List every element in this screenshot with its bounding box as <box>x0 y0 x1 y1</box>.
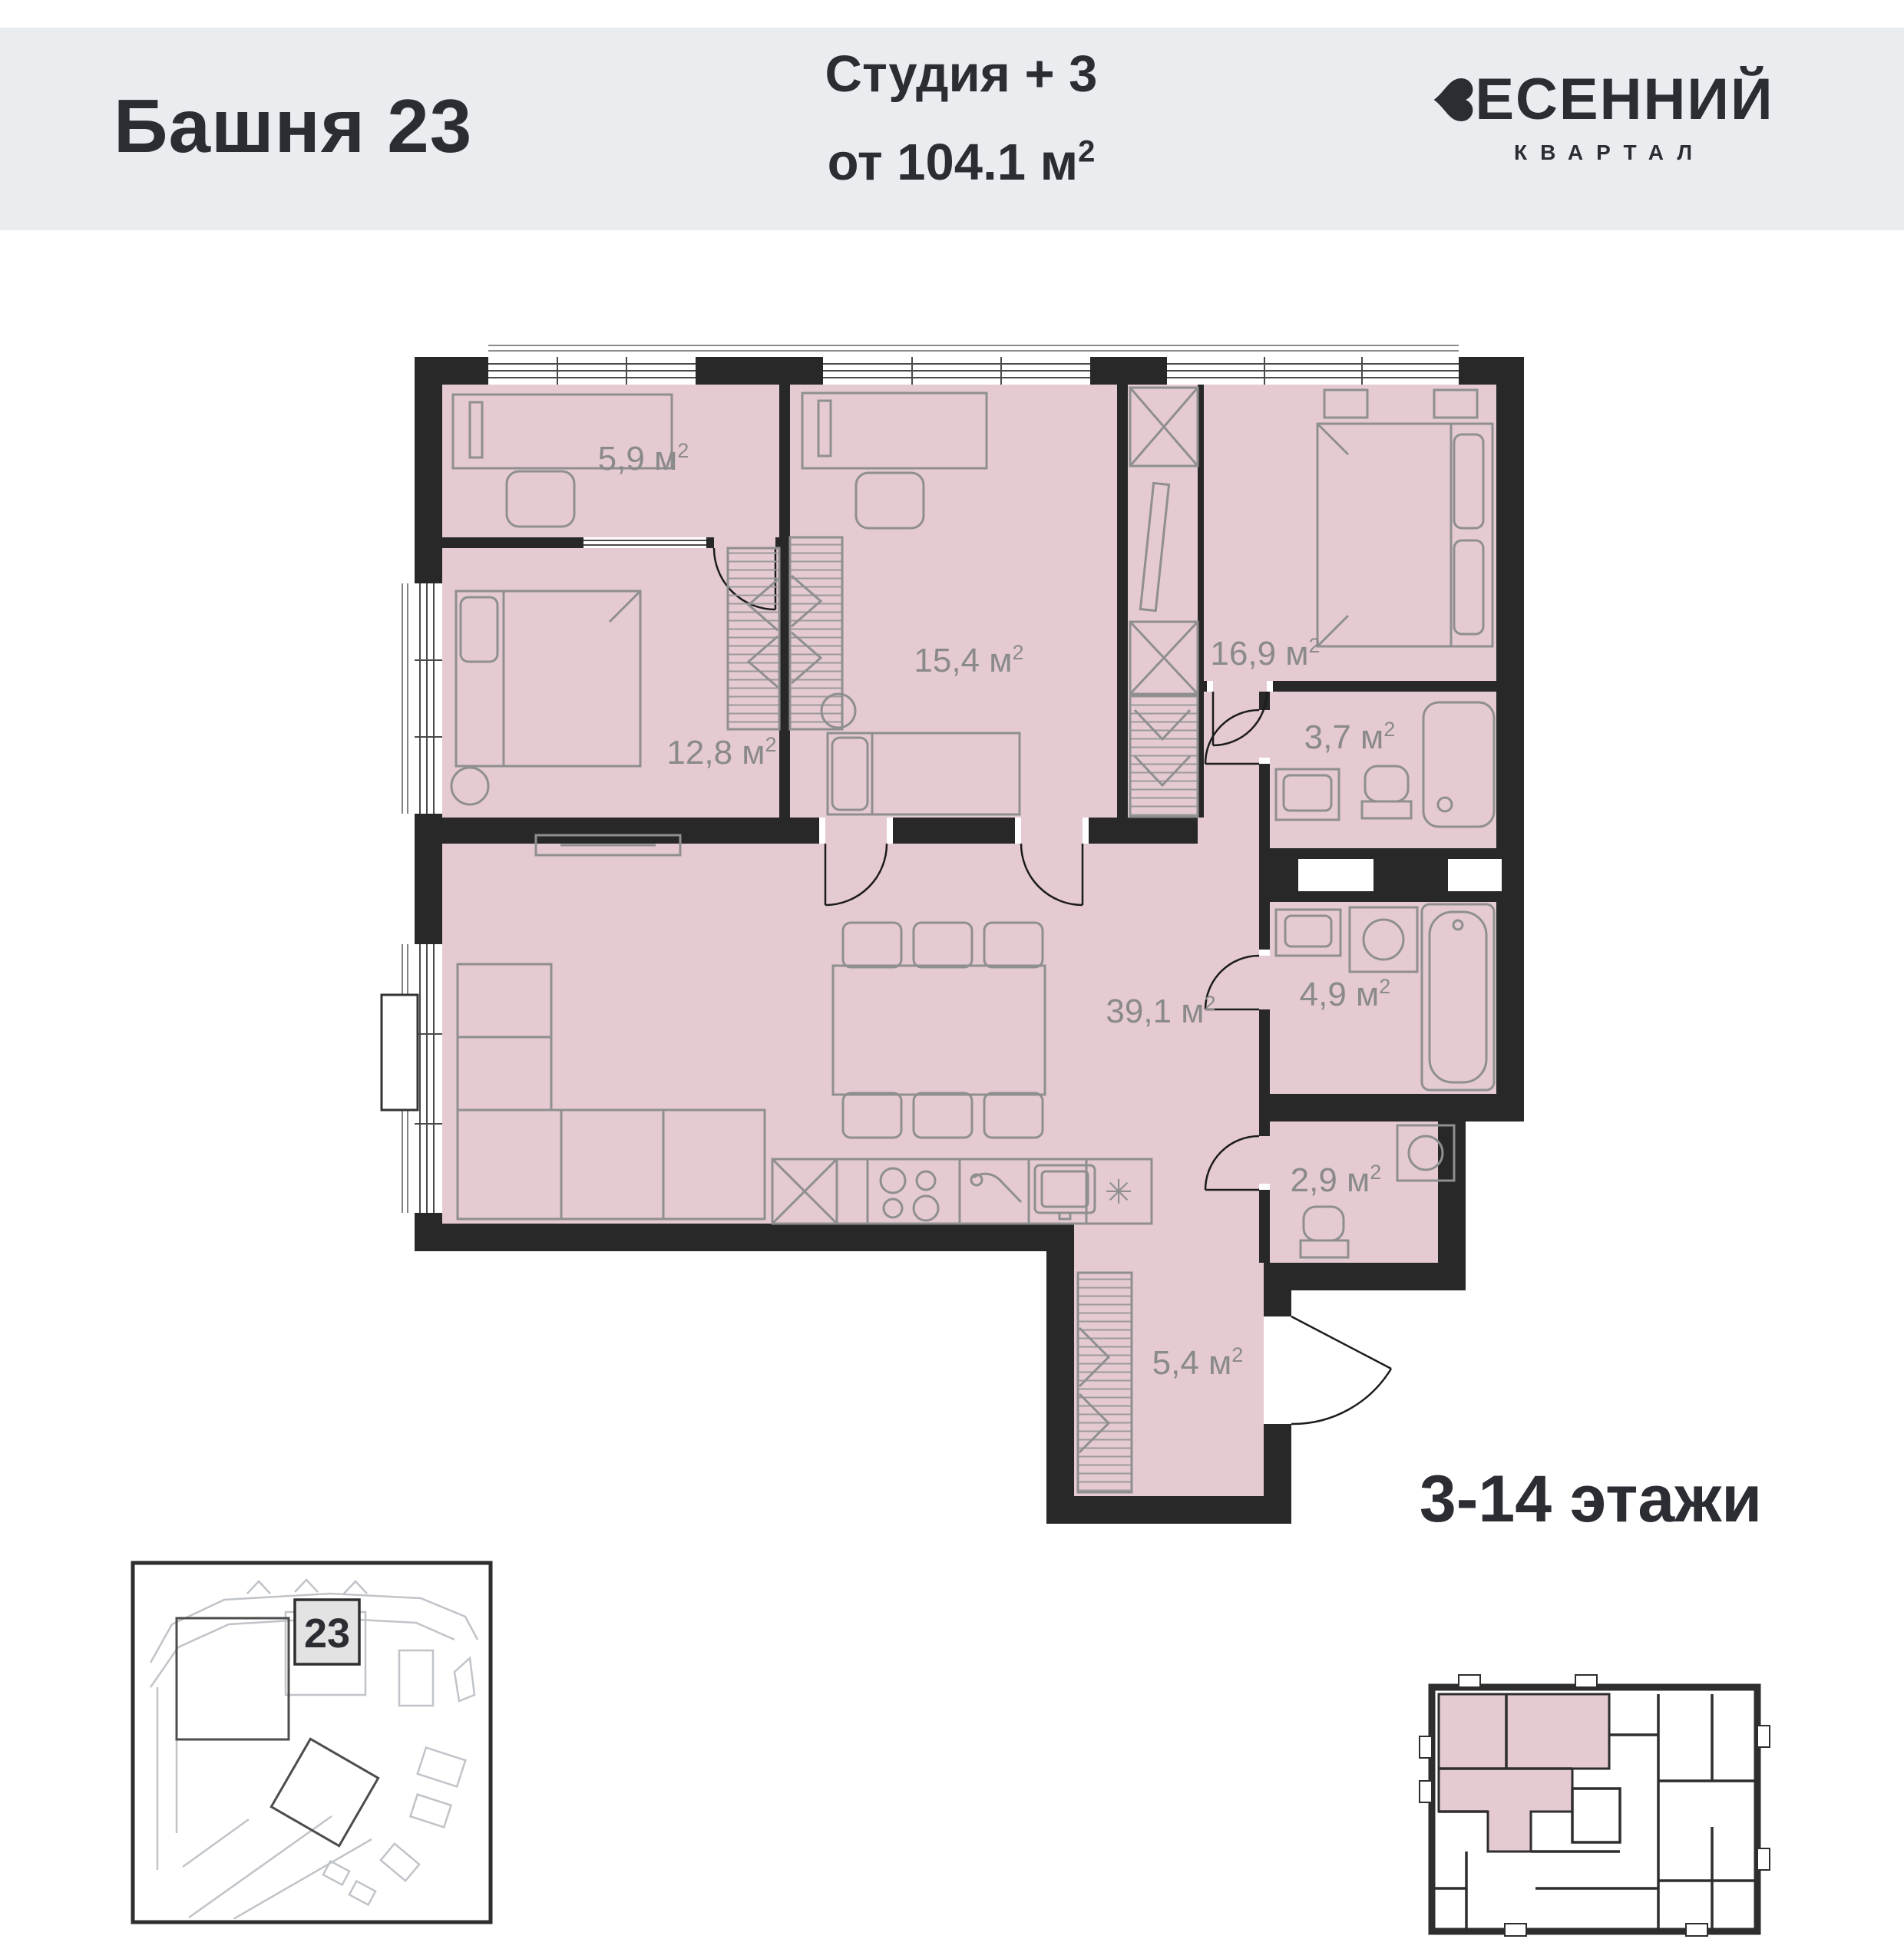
room-label-bedroom-master: 16,9 м2 <box>1210 634 1320 672</box>
hall-wardrobe <box>1078 1273 1132 1492</box>
room-label-cabinet: 5,9 м2 <box>598 439 689 477</box>
room-label-bedroom-1: 12,8 м2 <box>666 733 776 771</box>
site-plan: 23 <box>133 1563 491 1922</box>
mini-floorplate <box>1420 1675 1770 1936</box>
room-label-bathroom-small: 3,7 м2 <box>1304 718 1396 756</box>
room-label-wc: 2,9 м2 <box>1291 1161 1382 1199</box>
room-label-hallway: 5,4 м2 <box>1152 1343 1244 1382</box>
building-number: 23 <box>304 1610 350 1657</box>
room-label-bedroom-2: 15,4 м2 <box>914 641 1023 679</box>
page-canvas: ✳ 5,9 м2 15,4 м2 16,9 м2 12,8 м2 3,7 м2 … <box>0 0 1904 1949</box>
floors-heading: 3-14 этажи <box>1420 1462 1762 1536</box>
fridge-icon: ✳ <box>1105 1174 1133 1211</box>
wardrobe-12-8 <box>728 548 779 729</box>
room-label-bathroom: 4,9 м2 <box>1300 975 1391 1013</box>
apartment-floor <box>442 385 1496 1496</box>
page: { "header": { "tower_title": "Башня 23",… <box>0 0 1904 1949</box>
floor-plan: ✳ 5,9 м2 15,4 м2 16,9 м2 12,8 м2 3,7 м2 … <box>382 345 1524 1524</box>
balcony-bump <box>382 995 418 1110</box>
wardrobe-15-4 <box>790 537 842 729</box>
room-label-living: 39,1 м2 <box>1106 992 1215 1030</box>
